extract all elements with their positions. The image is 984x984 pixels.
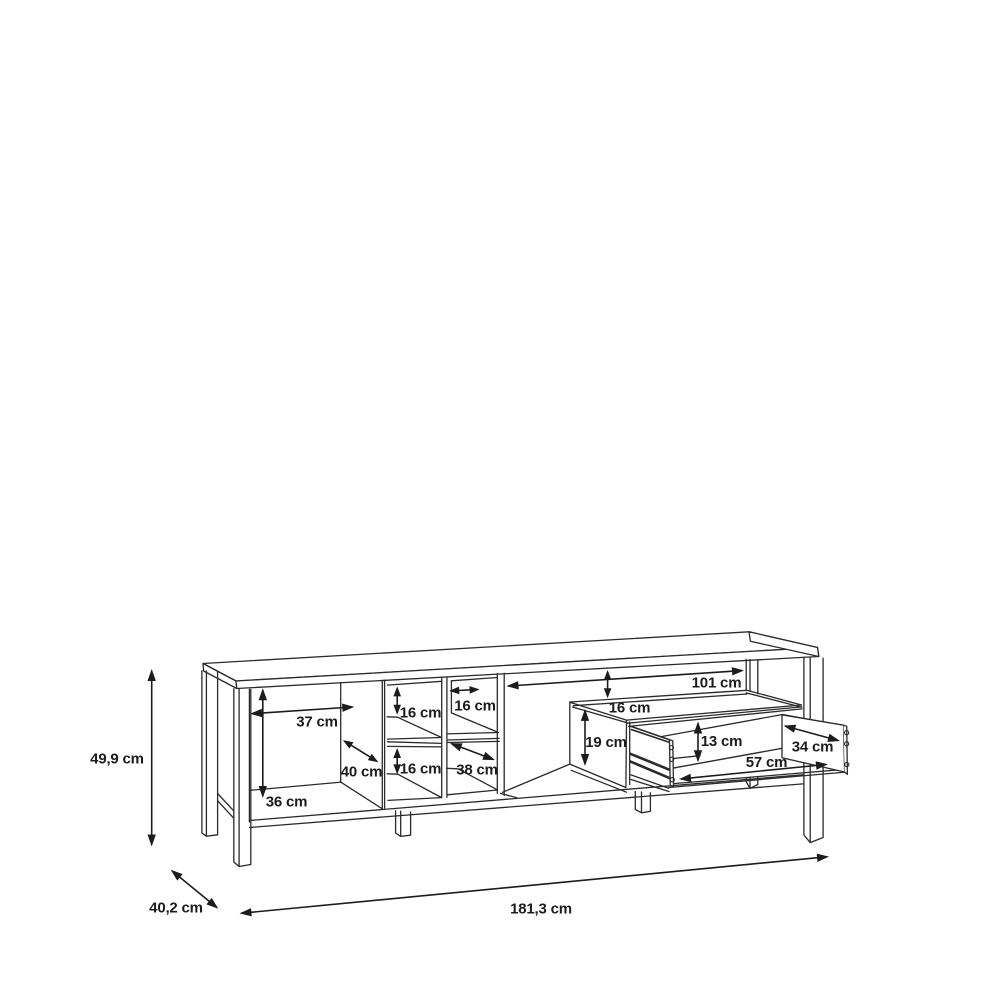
- svg-text:38 cm: 38 cm: [456, 762, 498, 779]
- svg-text:16 cm: 16 cm: [400, 705, 442, 722]
- svg-text:101 cm: 101 cm: [692, 675, 742, 692]
- svg-text:40 cm: 40 cm: [341, 764, 383, 781]
- svg-text:37 cm: 37 cm: [296, 714, 338, 731]
- svg-text:13 cm: 13 cm: [701, 733, 743, 750]
- svg-text:57 cm: 57 cm: [746, 754, 788, 771]
- svg-text:34 cm: 34 cm: [792, 739, 834, 756]
- svg-text:16 cm: 16 cm: [400, 761, 442, 778]
- svg-text:40,2 cm: 40,2 cm: [149, 900, 203, 917]
- svg-text:36 cm: 36 cm: [266, 794, 308, 811]
- svg-text:16 cm: 16 cm: [609, 700, 651, 717]
- svg-text:49,9 cm: 49,9 cm: [90, 751, 144, 768]
- svg-text:19 cm: 19 cm: [585, 734, 627, 751]
- svg-text:181,3 cm: 181,3 cm: [510, 901, 572, 918]
- svg-text:16 cm: 16 cm: [454, 698, 496, 715]
